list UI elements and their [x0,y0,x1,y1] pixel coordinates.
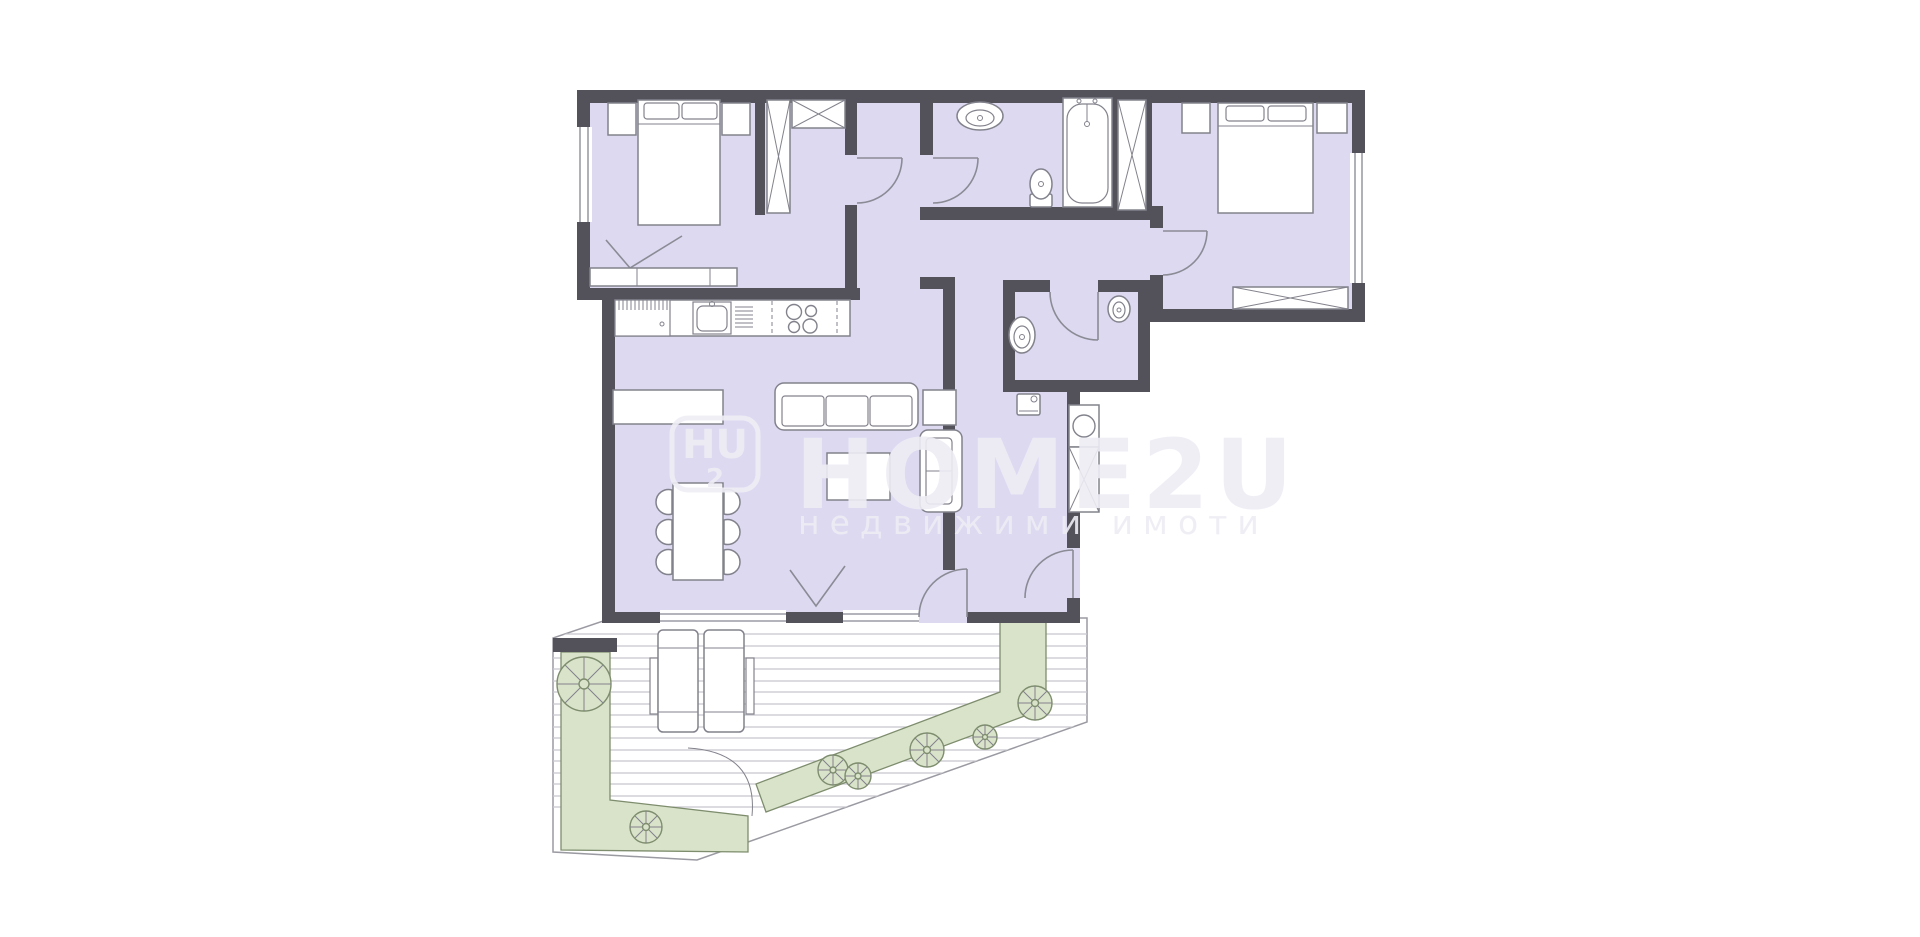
watermark-logo-number: 2 [706,464,724,494]
kitchen-left-cabinet [615,300,670,336]
sideboard [590,268,737,286]
window-living-left [660,610,786,624]
nightstand [1182,103,1210,133]
kitchen [615,300,850,336]
washbasin-icon [957,102,1003,130]
tree-icon [557,657,611,711]
bottom-wardrobe [1233,287,1348,309]
double-bed [1218,103,1313,213]
shaft-wardrobe [1118,100,1146,210]
floor-plan-svg: HU 2 HOME2U недвижими имоти [0,0,1920,937]
watermark-logo-letters: HU [682,422,748,468]
double-bed [638,100,720,225]
nightstand [722,103,750,135]
tree-icon [845,763,871,789]
tree-icon [973,725,997,749]
dining-table [673,483,723,580]
toilet-icon [1030,169,1052,207]
boiler-icon [1017,394,1040,415]
washbasin-icon [1009,317,1035,353]
corner-basin-icon [1108,296,1130,322]
tall-wardrobe [767,100,790,213]
dining-set [656,483,740,580]
nightstand [608,103,636,135]
bathtub-icon [1063,98,1112,207]
window-living-right [843,610,919,624]
floor-plan-image: HU 2 HOME2U недвижими имоти [0,0,1920,937]
tree-icon [910,733,944,767]
watermark-tagline: недвижими имоти [798,503,1269,542]
top-wardrobe [792,100,845,128]
tree-icon [630,811,662,843]
window-bedroom-1-left [575,127,592,222]
nightstand [1317,103,1347,133]
tree-icon [1018,686,1052,720]
window-bedroom-2-right [1350,153,1367,283]
terrace [553,618,1087,860]
tree-icon [818,755,848,785]
